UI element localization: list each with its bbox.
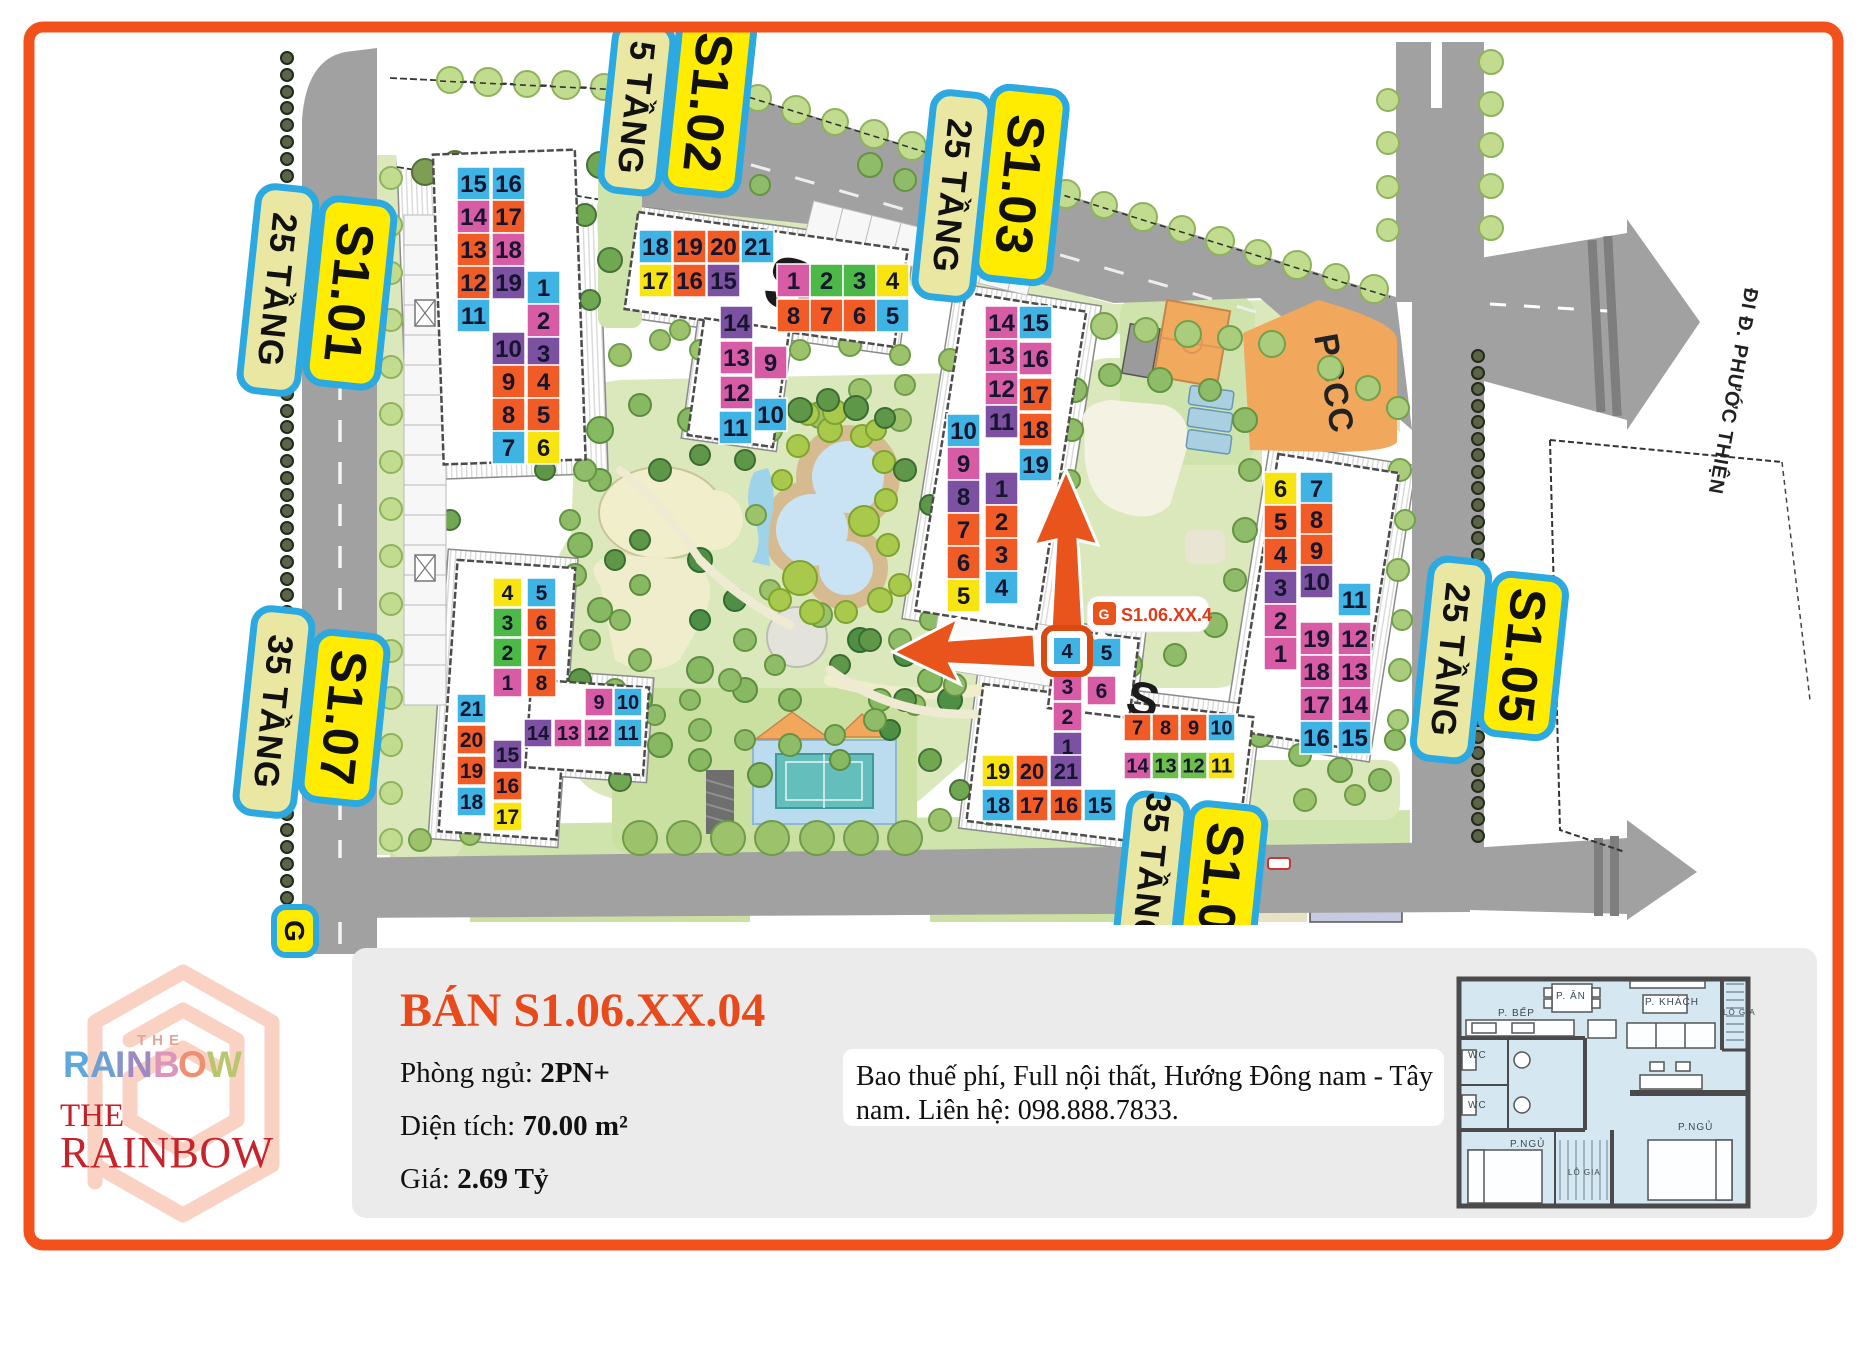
svg-text:17: 17 — [642, 268, 669, 295]
svg-text:O: O — [178, 1044, 207, 1085]
svg-text:12: 12 — [460, 270, 487, 297]
svg-text:18: 18 — [495, 237, 522, 264]
svg-text:7: 7 — [820, 303, 833, 330]
svg-text:9: 9 — [957, 451, 970, 478]
svg-text:12: 12 — [1341, 626, 1368, 653]
svg-text:1: 1 — [1274, 641, 1287, 668]
svg-text:12: 12 — [723, 380, 750, 407]
svg-text:13: 13 — [557, 723, 579, 745]
svg-text:6: 6 — [537, 435, 550, 462]
svg-text:P. KHÁCH: P. KHÁCH — [1645, 995, 1699, 1008]
svg-text:1: 1 — [787, 268, 800, 295]
svg-text:RAINBOW: RAINBOW — [60, 1128, 274, 1177]
svg-text:3: 3 — [537, 341, 550, 368]
svg-text:I: I — [115, 1044, 125, 1085]
svg-text:18: 18 — [986, 793, 1010, 818]
svg-text:6: 6 — [1274, 476, 1287, 503]
svg-text:3: 3 — [502, 612, 514, 635]
svg-text:P. ĂN: P. ĂN — [1556, 989, 1586, 1002]
svg-text:12: 12 — [587, 723, 609, 745]
svg-text:13: 13 — [460, 237, 487, 264]
svg-text:11: 11 — [617, 723, 638, 745]
svg-text:8: 8 — [787, 303, 800, 330]
svg-text:16: 16 — [1303, 725, 1330, 752]
svg-text:16: 16 — [1054, 793, 1078, 818]
svg-text:9: 9 — [1188, 718, 1199, 740]
svg-text:16: 16 — [495, 171, 522, 198]
svg-text:14: 14 — [988, 310, 1015, 337]
svg-text:18: 18 — [642, 234, 669, 261]
svg-text:11: 11 — [1342, 587, 1367, 614]
svg-text:N: N — [126, 1044, 153, 1085]
svg-text:3: 3 — [1274, 575, 1287, 602]
svg-text:19: 19 — [676, 234, 703, 261]
svg-text:16: 16 — [676, 268, 703, 295]
svg-text:20: 20 — [710, 234, 737, 261]
svg-text:2: 2 — [995, 509, 1008, 536]
svg-text:G: G — [279, 920, 310, 942]
svg-text:12: 12 — [1182, 756, 1204, 778]
svg-text:2: 2 — [537, 308, 550, 335]
svg-text:4: 4 — [995, 575, 1009, 602]
svg-text:4: 4 — [1061, 641, 1073, 663]
svg-text:B: B — [153, 1044, 180, 1085]
svg-text:13: 13 — [1341, 659, 1368, 686]
svg-text:8: 8 — [1160, 718, 1171, 740]
svg-text:2: 2 — [502, 642, 514, 665]
svg-text:10: 10 — [757, 402, 784, 429]
svg-text:11: 11 — [723, 415, 748, 442]
svg-text:4: 4 — [886, 268, 900, 295]
svg-text:14: 14 — [527, 723, 550, 745]
svg-text:11: 11 — [1211, 756, 1232, 778]
svg-text:15: 15 — [460, 171, 487, 198]
svg-text:7: 7 — [1132, 718, 1143, 740]
svg-text:14: 14 — [460, 204, 487, 231]
svg-text:9: 9 — [1310, 538, 1323, 565]
svg-text:P.NGỦ: P.NGỦ — [1510, 1137, 1545, 1150]
svg-text:Phòng ngủ: 2PN+: Phòng ngủ: 2PN+ — [400, 1057, 610, 1089]
svg-text:13: 13 — [1154, 756, 1176, 778]
svg-text:21: 21 — [1054, 759, 1078, 784]
svg-text:S1.06.XX.4: S1.06.XX.4 — [1121, 605, 1212, 625]
svg-text:8: 8 — [502, 402, 515, 429]
svg-text:14: 14 — [1341, 692, 1368, 719]
svg-text:14: 14 — [723, 310, 750, 337]
svg-text:8: 8 — [957, 484, 970, 511]
svg-text:6: 6 — [957, 550, 970, 577]
svg-text:17: 17 — [496, 806, 519, 829]
svg-text:21: 21 — [744, 234, 771, 261]
svg-text:14: 14 — [1126, 756, 1149, 778]
svg-text:17: 17 — [1020, 793, 1044, 818]
svg-text:nam. Liên hệ: 098.888.7833.: nam. Liên hệ: 098.888.7833. — [856, 1095, 1179, 1126]
svg-text:19: 19 — [1303, 626, 1330, 653]
svg-text:2: 2 — [1062, 706, 1074, 729]
svg-text:7: 7 — [1310, 476, 1323, 503]
svg-text:5: 5 — [1274, 509, 1287, 536]
svg-text:6: 6 — [1096, 680, 1108, 703]
svg-text:A: A — [90, 1044, 117, 1085]
svg-text:21: 21 — [460, 698, 484, 721]
svg-text:10: 10 — [1210, 718, 1232, 740]
svg-text:19: 19 — [495, 270, 522, 297]
svg-text:6: 6 — [536, 612, 548, 635]
svg-text:11: 11 — [461, 303, 486, 330]
svg-text:Giá: 2.69 Tỷ: Giá: 2.69 Tỷ — [400, 1163, 549, 1195]
svg-text:W: W — [207, 1044, 242, 1085]
svg-text:4: 4 — [502, 582, 514, 605]
svg-text:Diện tích: 70.00 m²: Diện tích: 70.00 m² — [400, 1110, 628, 1142]
svg-text:20: 20 — [460, 729, 483, 752]
svg-text:7: 7 — [957, 517, 970, 544]
svg-text:P. BẾP: P. BẾP — [1498, 1006, 1535, 1019]
svg-text:5: 5 — [957, 583, 970, 610]
svg-text:S1.0: S1.0 — [1186, 820, 1255, 936]
svg-text:LÔ GIA: LÔ GIA — [1568, 1168, 1601, 1177]
svg-text:10: 10 — [1303, 569, 1330, 596]
svg-text:5: 5 — [886, 303, 899, 330]
svg-text:17: 17 — [1303, 692, 1330, 719]
svg-text:5: 5 — [536, 582, 548, 605]
svg-text:15: 15 — [710, 268, 737, 295]
svg-text:5: 5 — [537, 402, 550, 429]
svg-text:15: 15 — [1341, 725, 1368, 752]
svg-text:8: 8 — [1310, 507, 1323, 534]
svg-text:18: 18 — [1303, 659, 1330, 686]
svg-text:15: 15 — [1088, 793, 1112, 818]
svg-text:19: 19 — [986, 759, 1010, 784]
svg-text:16: 16 — [496, 775, 519, 798]
svg-text:19: 19 — [1022, 452, 1049, 479]
svg-text:R: R — [63, 1044, 90, 1085]
svg-text:15: 15 — [496, 744, 520, 767]
svg-text:5: 5 — [1101, 642, 1113, 665]
svg-text:Bao thuế phí, Full nội thất, H: Bao thuế phí, Full nội thất, Hướng Đông … — [856, 1061, 1433, 1092]
svg-text:WC: WC — [1468, 1100, 1487, 1111]
svg-text:10: 10 — [950, 418, 977, 445]
svg-text:1: 1 — [537, 275, 550, 302]
svg-text:9: 9 — [502, 369, 515, 396]
svg-text:10: 10 — [617, 692, 639, 714]
svg-text:15: 15 — [1022, 310, 1049, 337]
svg-text:11: 11 — [989, 409, 1014, 436]
svg-text:20: 20 — [1020, 759, 1044, 784]
svg-text:BÁN S1.06.XX.04: BÁN S1.06.XX.04 — [400, 984, 765, 1037]
svg-text:12: 12 — [988, 376, 1015, 403]
svg-text:13: 13 — [723, 345, 750, 372]
svg-text:7: 7 — [536, 642, 548, 665]
svg-text:3: 3 — [995, 542, 1008, 569]
svg-text:7: 7 — [502, 435, 515, 462]
svg-text:2: 2 — [820, 268, 833, 295]
svg-text:6: 6 — [853, 303, 866, 330]
svg-text:1: 1 — [995, 476, 1008, 503]
svg-text:LÔ GIA: LÔ GIA — [1723, 1008, 1756, 1017]
svg-text:4: 4 — [1274, 542, 1288, 569]
svg-text:13: 13 — [988, 343, 1015, 370]
svg-text:G: G — [1099, 606, 1110, 622]
svg-text:16: 16 — [1022, 346, 1049, 373]
svg-text:9: 9 — [593, 692, 604, 714]
svg-text:18: 18 — [1022, 417, 1049, 444]
svg-text:17: 17 — [495, 204, 522, 231]
svg-text:P.NGỦ: P.NGỦ — [1678, 1120, 1713, 1133]
svg-text:4: 4 — [537, 369, 551, 396]
svg-text:WC: WC — [1468, 1050, 1487, 1061]
svg-text:17: 17 — [1022, 382, 1049, 409]
svg-text:19: 19 — [460, 760, 483, 783]
svg-text:10: 10 — [495, 336, 522, 363]
svg-text:9: 9 — [764, 350, 777, 377]
svg-text:3: 3 — [853, 268, 866, 295]
svg-text:8: 8 — [536, 672, 548, 695]
svg-text:18: 18 — [460, 791, 484, 814]
svg-text:1: 1 — [502, 672, 514, 695]
svg-text:3: 3 — [1062, 676, 1074, 699]
svg-text:2: 2 — [1274, 608, 1287, 635]
